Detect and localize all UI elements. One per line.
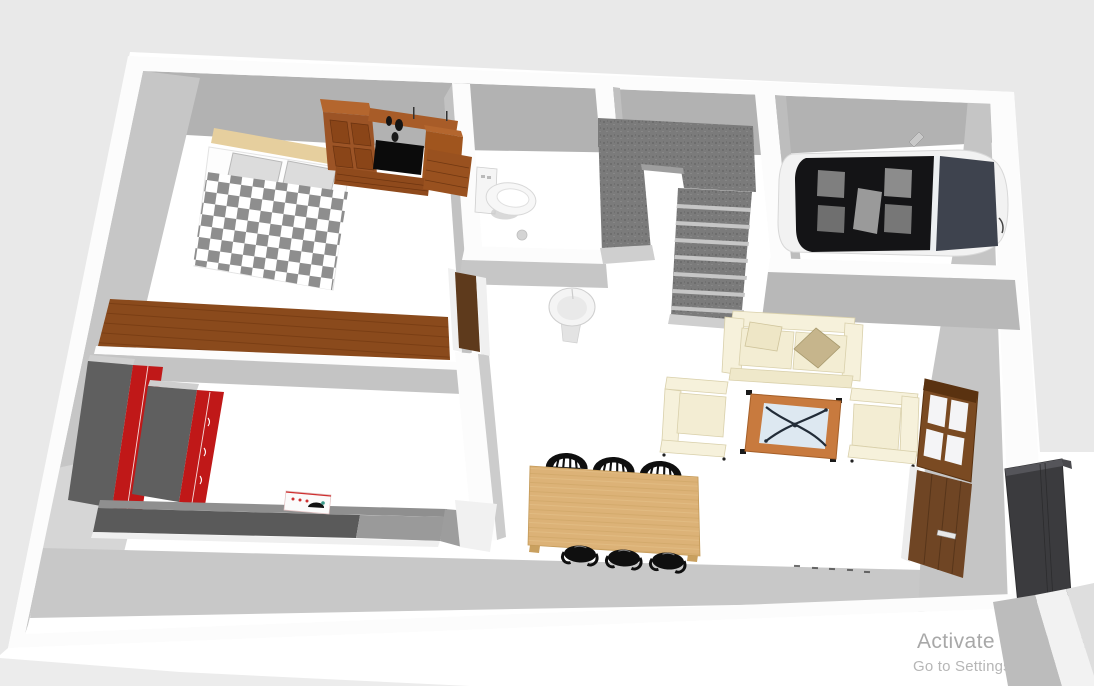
counter-end-panel [455,500,497,552]
tv-screen [373,140,424,175]
coffee-table[interactable] [740,390,842,462]
bedroom-door-leaf [455,272,480,352]
sink-basin [557,296,587,320]
armchair-side [900,396,919,456]
cooktop-knob2 [299,499,302,502]
toilet-button2 [487,176,491,179]
floor-drain [517,230,527,240]
armchair-seat [852,404,901,450]
house [8,56,1072,648]
cooktop-knob3 [306,500,309,503]
armchair-seat [677,393,726,437]
double-bed[interactable] [193,128,349,290]
counter-front-light [356,515,445,541]
right-drawer-chest [423,149,472,197]
armchair-foot [850,459,853,462]
toilet-button [481,175,485,178]
floor-plan-3d-view[interactable]: Activate Windows Go to Settings to activ… [0,0,1094,686]
armchair-right[interactable] [848,388,919,468]
floor-plan-3d-viewport[interactable]: Activate Windows Go to Settings to activ… [0,0,1094,686]
table-leg [529,545,540,553]
coffee-leg-knot [793,423,798,428]
armchair-foot [722,457,725,460]
wooden-door-leaf [908,470,972,578]
car-windshield [936,156,998,251]
cooktop[interactable] [284,491,331,514]
sofa[interactable] [722,311,863,388]
sofa-pillow-cream [745,322,782,351]
coffee-leg-end [764,439,768,443]
window[interactable] [917,379,978,482]
pan-dot [321,501,325,505]
bedroom-door[interactable] [448,268,490,356]
armchair-foot [662,453,665,456]
cooktop-knob [292,498,295,501]
armchair-left[interactable] [660,377,728,461]
coffee-leg-end [824,408,828,412]
table-top [528,466,700,556]
